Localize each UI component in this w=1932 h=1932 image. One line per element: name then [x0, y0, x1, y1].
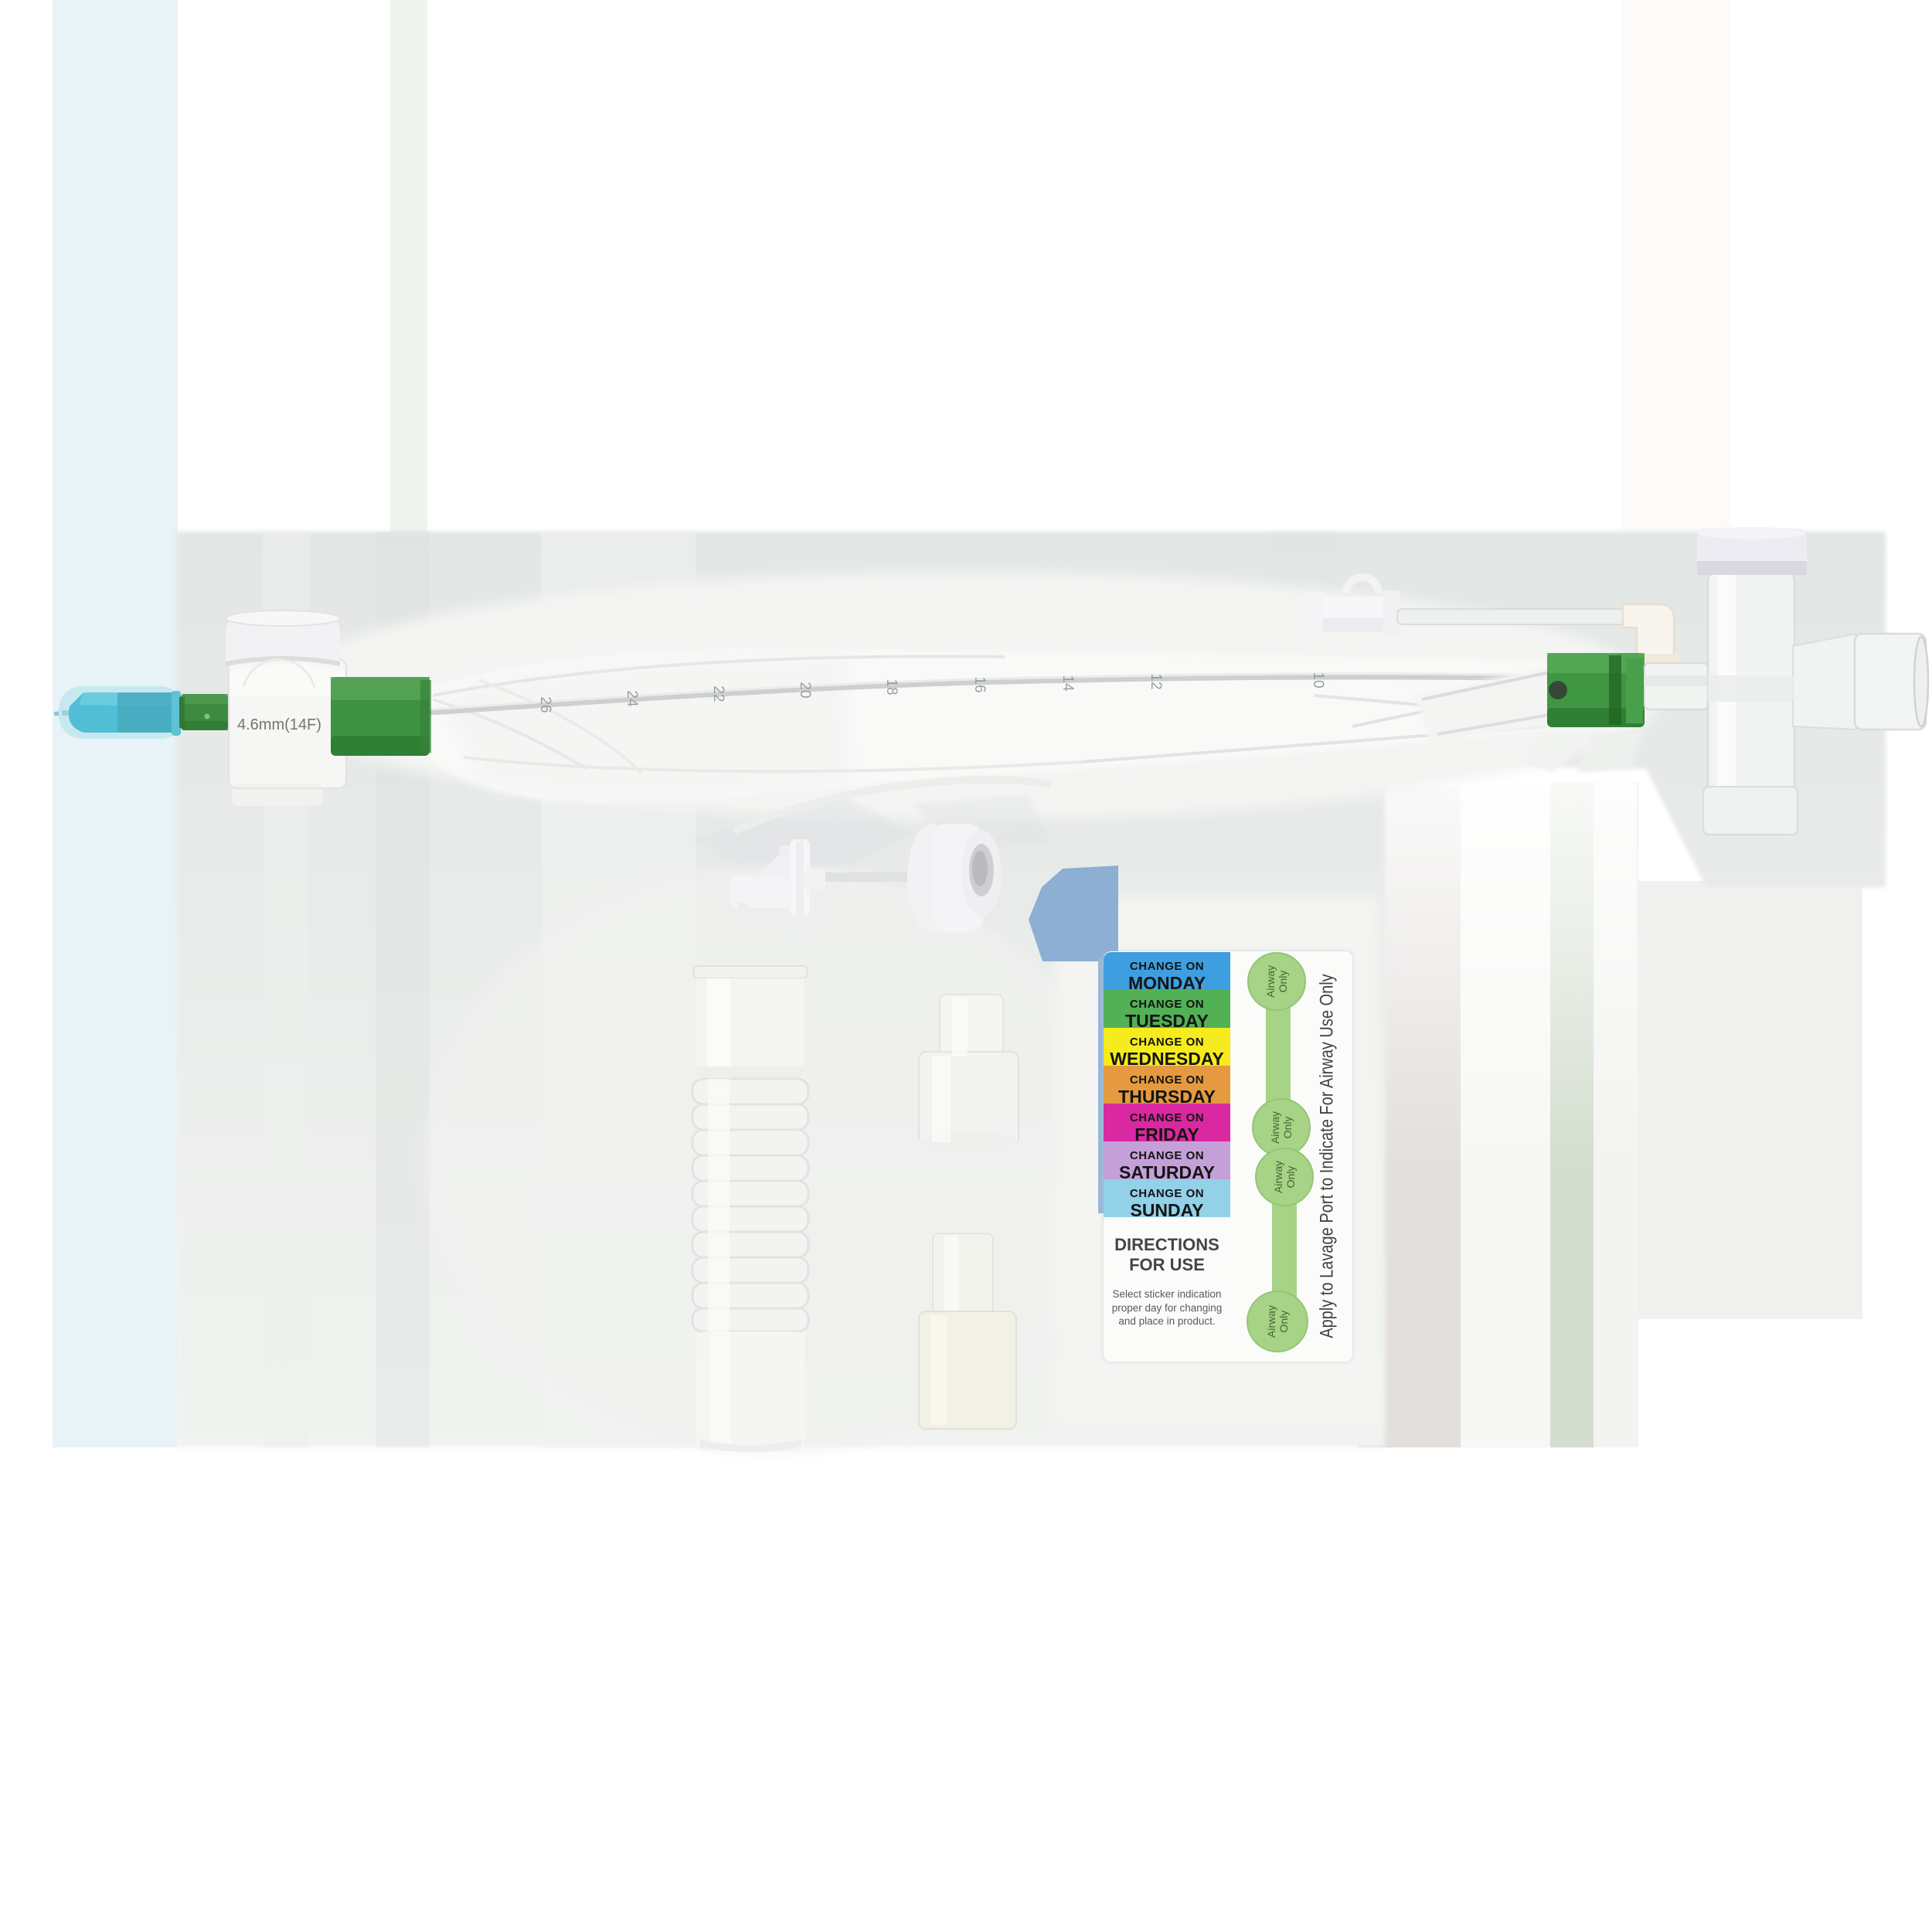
- svg-text:Airway: Airway: [1265, 1305, 1277, 1338]
- svg-text:Airway: Airway: [1269, 1111, 1281, 1144]
- svg-text:22: 22: [710, 685, 726, 702]
- svg-text:Only: Only: [1277, 1311, 1290, 1333]
- svg-text:Only: Only: [1281, 1117, 1294, 1139]
- svg-text:16: 16: [971, 676, 988, 692]
- svg-text:10: 10: [1310, 672, 1326, 688]
- svg-text:4.6mm(14F): 4.6mm(14F): [237, 716, 321, 733]
- svg-text:Airway: Airway: [1264, 965, 1277, 998]
- svg-text:14: 14: [1060, 675, 1076, 692]
- svg-text:24: 24: [624, 690, 640, 707]
- svg-text:12: 12: [1148, 673, 1164, 689]
- svg-text:Airway: Airway: [1272, 1161, 1284, 1193]
- svg-text:18: 18: [883, 679, 900, 695]
- svg-text:26: 26: [537, 696, 553, 713]
- svg-text:Only: Only: [1277, 971, 1289, 993]
- svg-text:20: 20: [797, 682, 813, 698]
- svg-text:Only: Only: [1284, 1166, 1297, 1189]
